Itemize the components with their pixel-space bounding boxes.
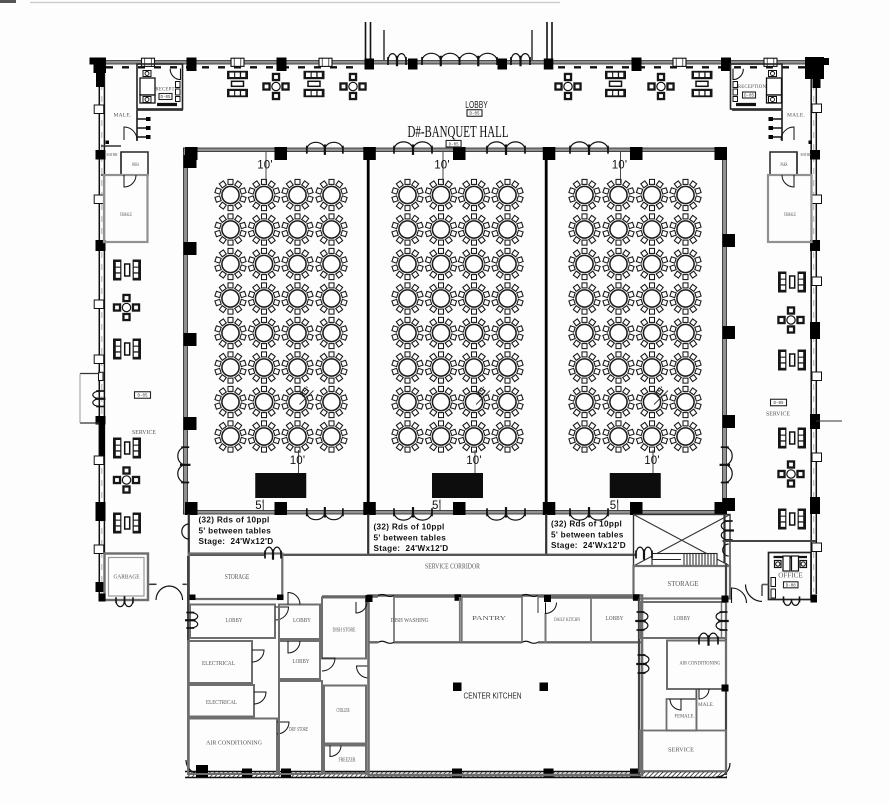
svg-text:(32) Rds of 10ppl: (32) Rds of 10ppl <box>551 520 622 529</box>
svg-text:FEMALE: FEMALE <box>784 212 796 218</box>
svg-text:10': 10' <box>257 160 273 172</box>
svg-text:LOBBY: LOBBY <box>674 615 691 622</box>
svg-text:STORAGE: STORAGE <box>225 573 250 581</box>
svg-text:MALE.: MALE. <box>787 113 805 119</box>
svg-text:CENTER KITCHEN: CENTER KITCHEN <box>464 690 522 700</box>
svg-text:ELECTRICAL: ELECTRICAL <box>206 699 237 706</box>
svg-text:PARA: PARA <box>132 163 139 168</box>
svg-text:D-05: D-05 <box>469 113 480 117</box>
svg-text:(32) Rds of 10ppl: (32) Rds of 10ppl <box>374 523 445 532</box>
svg-text:STORAGE: STORAGE <box>668 580 699 588</box>
svg-text:PARA: PARA <box>781 163 788 168</box>
svg-text:BATHR: BATHR <box>801 152 812 157</box>
svg-text:RECEPT: RECEPT <box>155 88 174 93</box>
svg-text:GARBAGE: GARBAGE <box>114 575 140 581</box>
svg-text:DISH WASHING: DISH WASHING <box>391 618 430 624</box>
svg-text:MALE.: MALE. <box>114 113 132 119</box>
svg-text:Stage: 24'Wx12'D: Stage: 24'Wx12'D <box>199 537 274 546</box>
svg-text:D-05: D-05 <box>160 96 171 100</box>
svg-text:D-05: D-05 <box>744 95 755 99</box>
svg-text:CHILLER: CHILLER <box>337 708 350 714</box>
svg-text:DISH STORE: DISH STORE <box>333 628 356 634</box>
svg-text:D-05: D-05 <box>773 402 784 406</box>
svg-text:10': 10' <box>434 160 450 172</box>
svg-text:D#-BANQUET HALL: D#-BANQUET HALL <box>408 122 509 141</box>
svg-text:Stage: 24'Wx12'D: Stage: 24'Wx12'D <box>374 544 449 553</box>
svg-text:RECEPTION: RECEPTION <box>738 85 767 90</box>
svg-text:SERVICE: SERVICE <box>132 429 156 436</box>
svg-text:LOBBY: LOBBY <box>465 100 488 111</box>
svg-text:MALE.: MALE. <box>698 702 715 708</box>
svg-text:DAILY KITCHN: DAILY KITCHN <box>554 617 580 623</box>
svg-text:5' between tables: 5' between tables <box>551 531 624 540</box>
svg-text:SERVICE: SERVICE <box>668 747 694 754</box>
svg-text:5' between tables: 5' between tables <box>199 527 272 536</box>
svg-text:OFFICE: OFFICE <box>778 572 803 580</box>
svg-text:LOBBY: LOBBY <box>606 615 624 622</box>
svg-text:FEMALE.: FEMALE. <box>675 714 696 720</box>
svg-text:ELECTRICAL: ELECTRICAL <box>202 660 235 667</box>
svg-text:AIR CONDITIONING: AIR CONDITIONING <box>680 661 721 667</box>
svg-text:D-05: D-05 <box>449 143 460 147</box>
svg-text:Stage: 24'Wx12'D: Stage: 24'Wx12'D <box>551 541 626 550</box>
svg-text:FEMALE: FEMALE <box>120 212 132 218</box>
svg-text:LOBBY: LOBBY <box>293 658 310 665</box>
svg-text:10': 10' <box>612 160 628 172</box>
svg-text:FREEZER: FREEZER <box>339 758 356 764</box>
svg-text:AIR CONDITIONING: AIR CONDITIONING <box>206 740 262 747</box>
svg-text:LOBBY: LOBBY <box>293 617 311 624</box>
svg-text:LOBBY: LOBBY <box>226 617 243 624</box>
svg-text:5' between tables: 5' between tables <box>374 534 447 543</box>
svg-text:10': 10' <box>290 455 306 467</box>
svg-text:SERVICE: SERVICE <box>766 411 790 418</box>
svg-text:DRY STORE: DRY STORE <box>289 727 308 733</box>
svg-text:D-08: D-08 <box>786 585 797 589</box>
svg-text:BATHR: BATHR <box>107 152 118 157</box>
svg-text:SERVICE CORRIDOR: SERVICE CORRIDOR <box>425 563 480 571</box>
svg-text:(32) Rds of 10ppl: (32) Rds of 10ppl <box>199 516 270 525</box>
svg-text:10': 10' <box>644 455 660 467</box>
svg-text:PANTRY: PANTRY <box>472 615 506 622</box>
svg-text:D-05: D-05 <box>137 395 148 399</box>
svg-text:10': 10' <box>466 455 482 467</box>
